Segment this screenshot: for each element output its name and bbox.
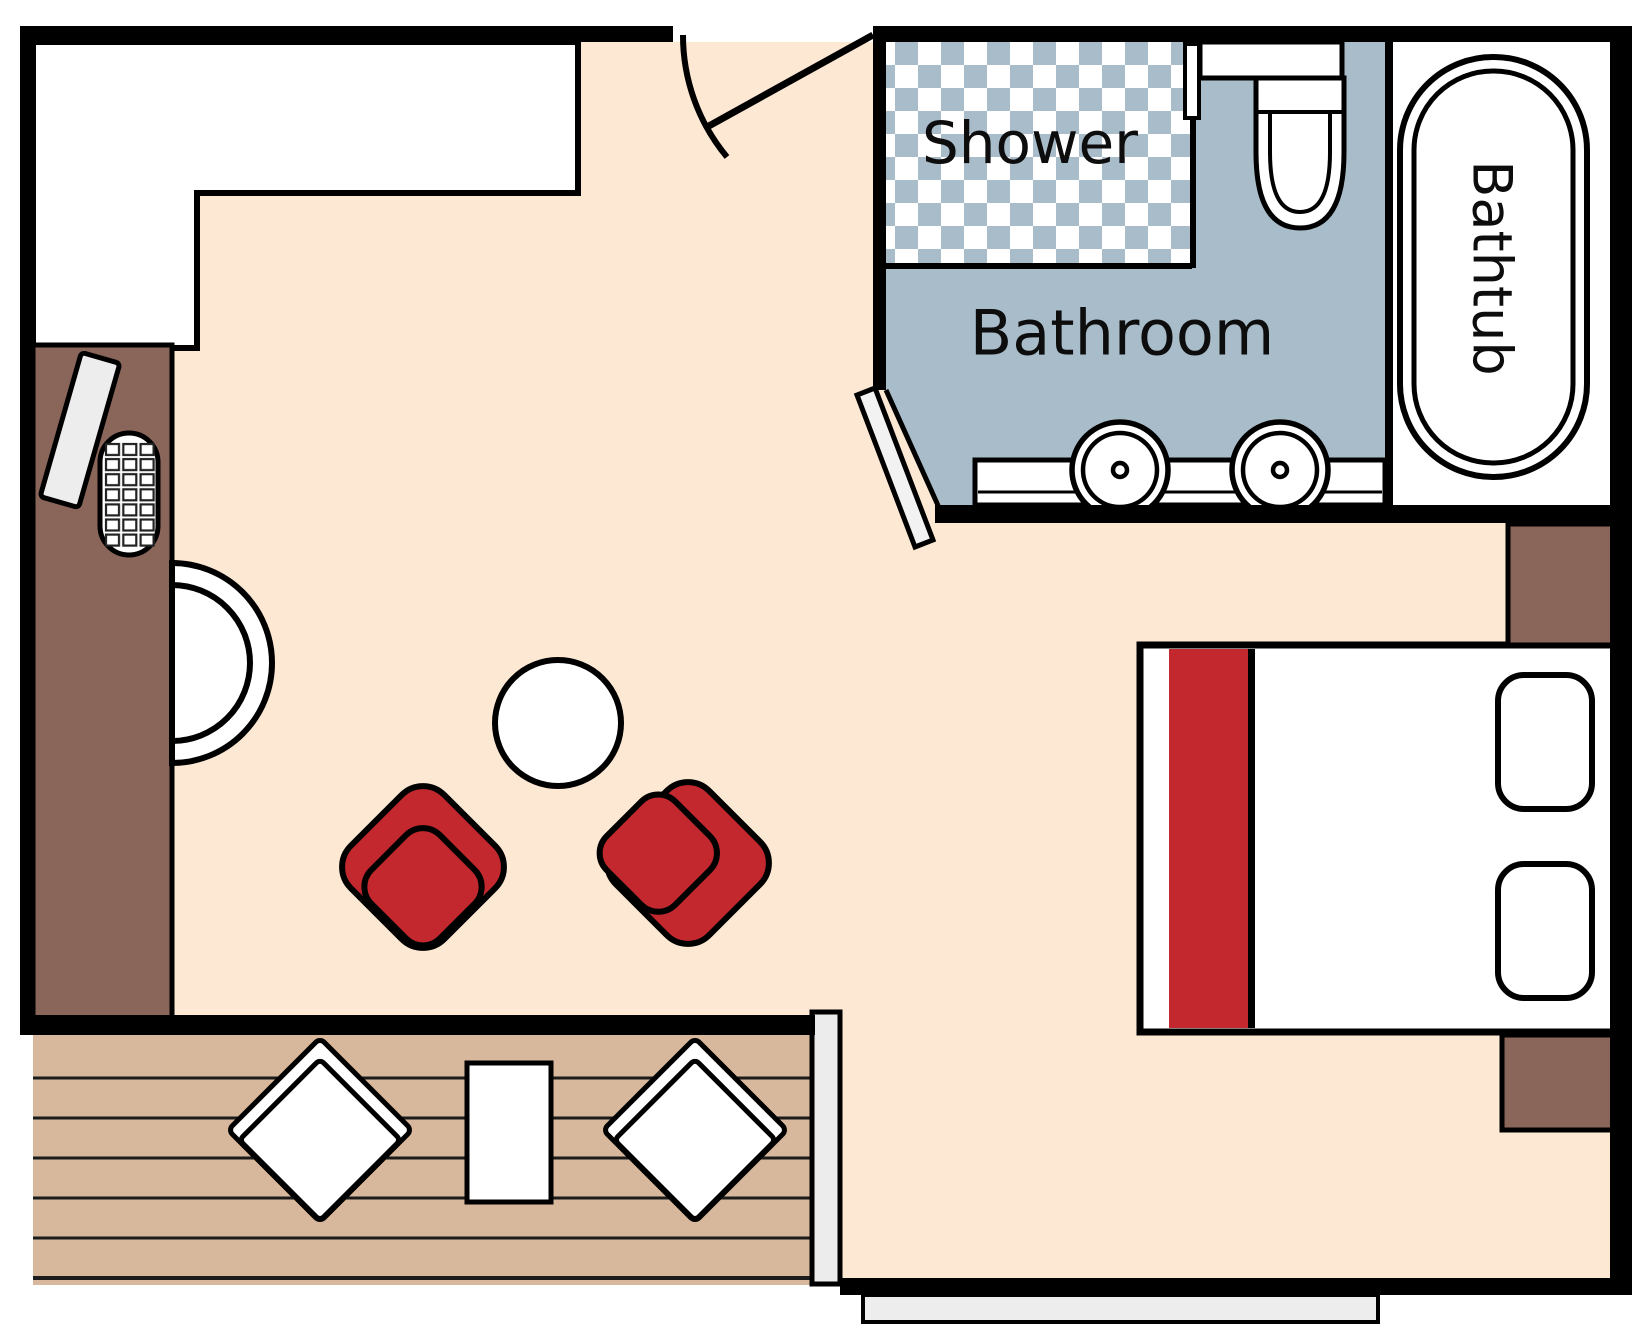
wall-left: [20, 26, 33, 1035]
sliding-door: [812, 1012, 840, 1284]
shower-door: [1185, 44, 1199, 118]
toilet-tank: [1200, 42, 1342, 78]
wall-top-right: [873, 26, 1632, 42]
bed: [1140, 645, 1614, 1032]
shower-partition: [1190, 112, 1196, 268]
coffee-table: [495, 660, 621, 786]
luggage-rack: [100, 433, 158, 555]
shower-label: Shower: [922, 109, 1138, 177]
wall-bathtub-separator: [1385, 42, 1393, 505]
wall-bottom: [840, 1278, 1632, 1295]
bathtub-label: Bathtub: [1461, 160, 1524, 375]
bed-runner: [1169, 649, 1248, 1028]
wall-top-left: [20, 26, 673, 42]
terrace-deck: [33, 1035, 810, 1285]
entry-step: [863, 1295, 1378, 1322]
floor-plan: Shower Bathroom Bathtub: [0, 0, 1652, 1332]
wall-bathroom-bottom: [935, 505, 1632, 523]
bathroom-label: Bathroom: [970, 297, 1275, 370]
wall-right: [1610, 26, 1632, 1295]
wall-bathroom-left: [873, 42, 886, 390]
deck-table: [467, 1063, 551, 1202]
wall-deck: [20, 1015, 815, 1035]
pillow-top: [1498, 675, 1592, 809]
nightstand-top: [1508, 524, 1615, 645]
nightstand-bottom: [1502, 1035, 1615, 1130]
sink-right: [1232, 422, 1328, 518]
floor-plan-page: Shower Bathroom Bathtub: [0, 0, 1652, 1332]
sink-left: [1072, 422, 1168, 518]
pillow-bottom: [1498, 864, 1592, 998]
